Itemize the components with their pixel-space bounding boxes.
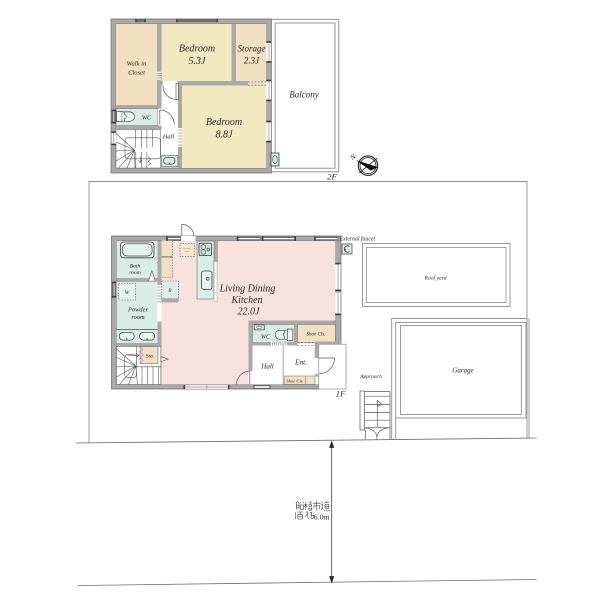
svg-text:External faucet: External faucet xyxy=(339,236,376,243)
svg-text:Approach: Approach xyxy=(359,374,382,380)
svg-text:WC: WC xyxy=(261,334,271,341)
svg-text:Bedroom: Bedroom xyxy=(179,44,215,55)
svg-text:Balcony: Balcony xyxy=(289,90,319,100)
svg-text:Walk in: Walk in xyxy=(127,61,147,68)
svg-text:1F: 1F xyxy=(336,389,346,399)
svg-text:Storage: Storage xyxy=(238,44,266,54)
svg-text:Kitchen: Kitchen xyxy=(230,295,262,306)
svg-text:22.0J: 22.0J xyxy=(238,307,261,318)
svg-text:Roof yard: Roof yard xyxy=(423,275,446,282)
svg-text:Hall: Hall xyxy=(162,134,175,141)
svg-text:5.3J: 5.3J xyxy=(189,56,207,67)
svg-text:2F: 2F xyxy=(327,172,337,182)
svg-text:Bath: Bath xyxy=(130,264,141,270)
svg-text:8.8J: 8.8J xyxy=(216,130,234,141)
svg-text:room: room xyxy=(129,270,141,276)
svg-text:Bedroom: Bedroom xyxy=(206,117,242,128)
svg-text:Shoe Cls.: Shoe Cls. xyxy=(307,333,326,338)
svg-text:Garage: Garage xyxy=(452,367,473,375)
svg-text:Closet: Closet xyxy=(128,70,145,77)
svg-text:Living Dining: Living Dining xyxy=(219,284,276,295)
svg-text:6.0m: 6.0m xyxy=(314,512,330,521)
svg-text:2.3J: 2.3J xyxy=(244,56,260,66)
svg-text:Powder: Powder xyxy=(127,307,148,314)
svg-text:Sto.: Sto. xyxy=(146,354,155,360)
svg-text:Ent.: Ent. xyxy=(294,358,307,367)
svg-text:Hall: Hall xyxy=(260,363,274,371)
svg-text:room: room xyxy=(131,314,145,321)
svg-text:Shoe Cls.: Shoe Cls. xyxy=(286,379,303,384)
svg-text:WC: WC xyxy=(142,115,152,122)
svg-text:W: W xyxy=(125,290,130,296)
